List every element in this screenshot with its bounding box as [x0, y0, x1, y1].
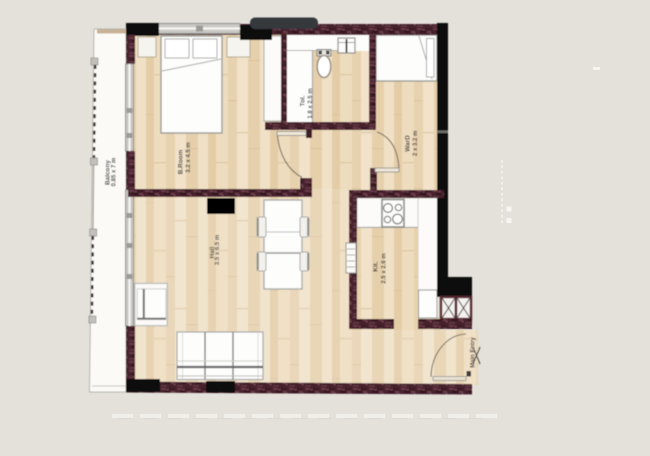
svg-text:B.Room: B.Room	[178, 149, 185, 174]
svg-text:2 x 3.2 m: 2 x 3.2 m	[413, 131, 419, 156]
svg-text:Main Entry: Main Entry	[471, 337, 477, 368]
svg-text:WarD: WarD	[405, 135, 412, 152]
svg-text:Tol.: Tol.	[300, 95, 307, 106]
svg-text:Kit.: Kit.	[373, 261, 380, 272]
svg-text:0.85 x 7 m: 0.85 x 7 m	[112, 158, 118, 187]
svg-text:3.2 x 4.5 m: 3.2 x 4.5 m	[186, 142, 192, 172]
svg-text:Balcony: Balcony	[105, 160, 112, 185]
svg-text:2.5 x 2.6 m: 2.5 x 2.6 m	[382, 253, 388, 283]
svg-text:1.8 x 2.5 m: 1.8 x 2.5 m	[308, 88, 314, 118]
